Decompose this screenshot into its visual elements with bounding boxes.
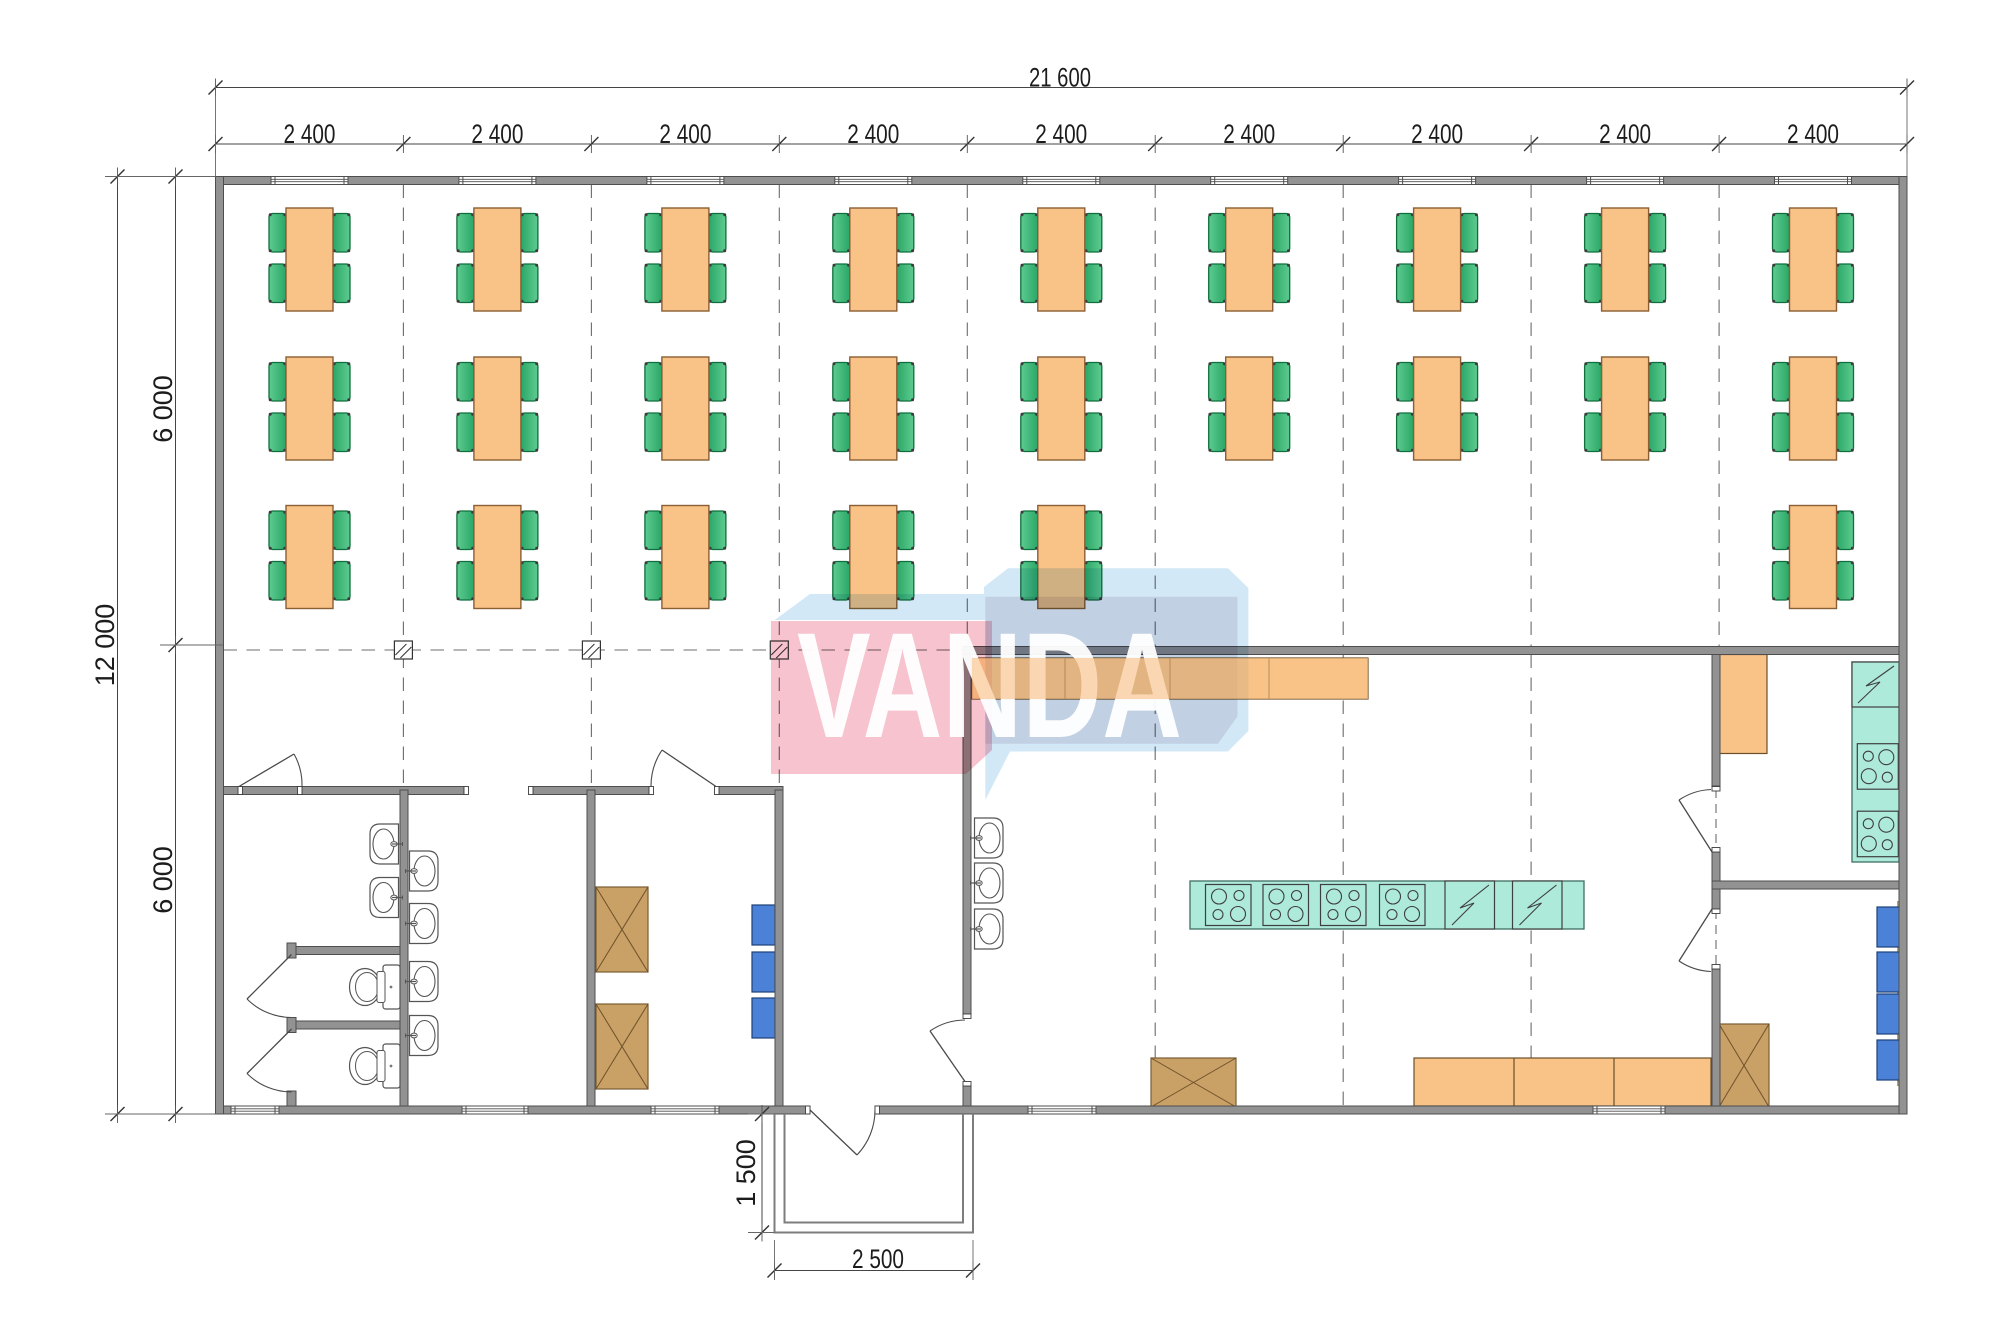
svg-text:2 400: 2 400 (1787, 119, 1839, 149)
svg-text:2 400: 2 400 (1223, 119, 1275, 149)
svg-text:21 600: 21 600 (1029, 63, 1091, 93)
svg-text:12 000: 12 000 (90, 604, 120, 687)
svg-text:2 400: 2 400 (471, 119, 523, 149)
svg-text:6 000: 6 000 (148, 846, 178, 914)
svg-text:6 000: 6 000 (148, 375, 178, 443)
svg-text:2 400: 2 400 (659, 119, 711, 149)
svg-text:2 400: 2 400 (1411, 119, 1463, 149)
svg-text:2 400: 2 400 (847, 119, 899, 149)
svg-text:1 500: 1 500 (731, 1139, 761, 1207)
svg-text:2 400: 2 400 (284, 119, 336, 149)
svg-text:2 500: 2 500 (852, 1244, 904, 1274)
svg-text:2 400: 2 400 (1599, 119, 1651, 149)
svg-text:2 400: 2 400 (1035, 119, 1087, 149)
